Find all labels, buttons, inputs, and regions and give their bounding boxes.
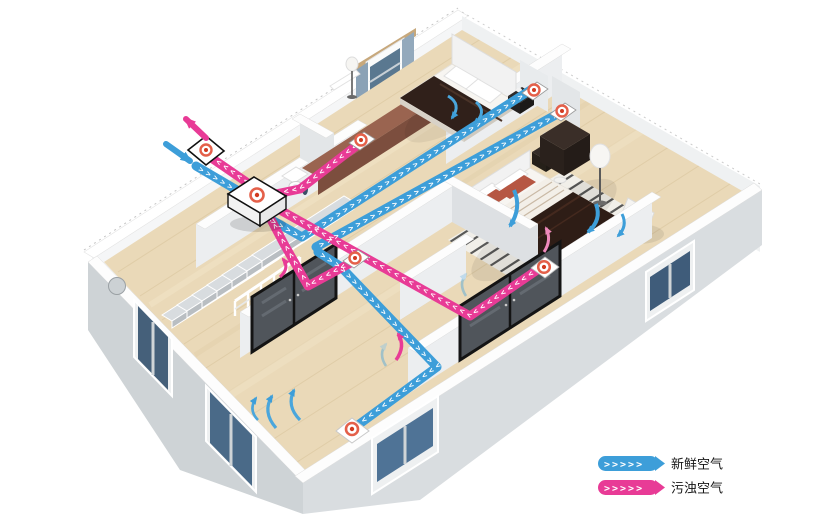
stool (554, 177, 566, 183)
floor-lamp (346, 57, 358, 71)
legend: >>>>> 新鲜空气 >>>>> 污浊空气 (598, 456, 723, 497)
wall-vent-cap (109, 278, 126, 295)
legend-item-fresh-air: >>>>> 新鲜空气 (598, 456, 723, 473)
ventilation-diagram: >>>>>>>>>>>>>>>>>>>>>>>>>>>>>>>>>>>>>>>>… (0, 0, 824, 529)
fresh-air-label: 新鲜空气 (671, 457, 723, 473)
svg-text:>>>>>>>>>>>>>>>>>>>>>>>>>>>>>>: >>>>>>>>>>>>>>>>>>>>>>>>>>>>>>>>>>>>>>>>… (0, 0, 257, 191)
exhaust-out-arrow (186, 119, 206, 138)
legend-item-exhaust-air: >>>>> 污浊空气 (598, 480, 723, 497)
exhaust-air-chevrons: >>>>> (604, 484, 644, 495)
fresh-in-arrow (166, 144, 190, 161)
fresh-air-chevrons: >>>>> (604, 460, 644, 471)
isometric-house-scene: >>>>>>>>>>>>>>>>>>>>>>>>>>>>>>>>>>>>>>>>… (0, 0, 824, 529)
duct-chevrons: >>>>>>>>>>>>>>>>>>>>>>>>>>>>>>>>>>>>>>>>… (0, 0, 257, 191)
exhaust-air-label: 污浊空气 (671, 481, 723, 497)
